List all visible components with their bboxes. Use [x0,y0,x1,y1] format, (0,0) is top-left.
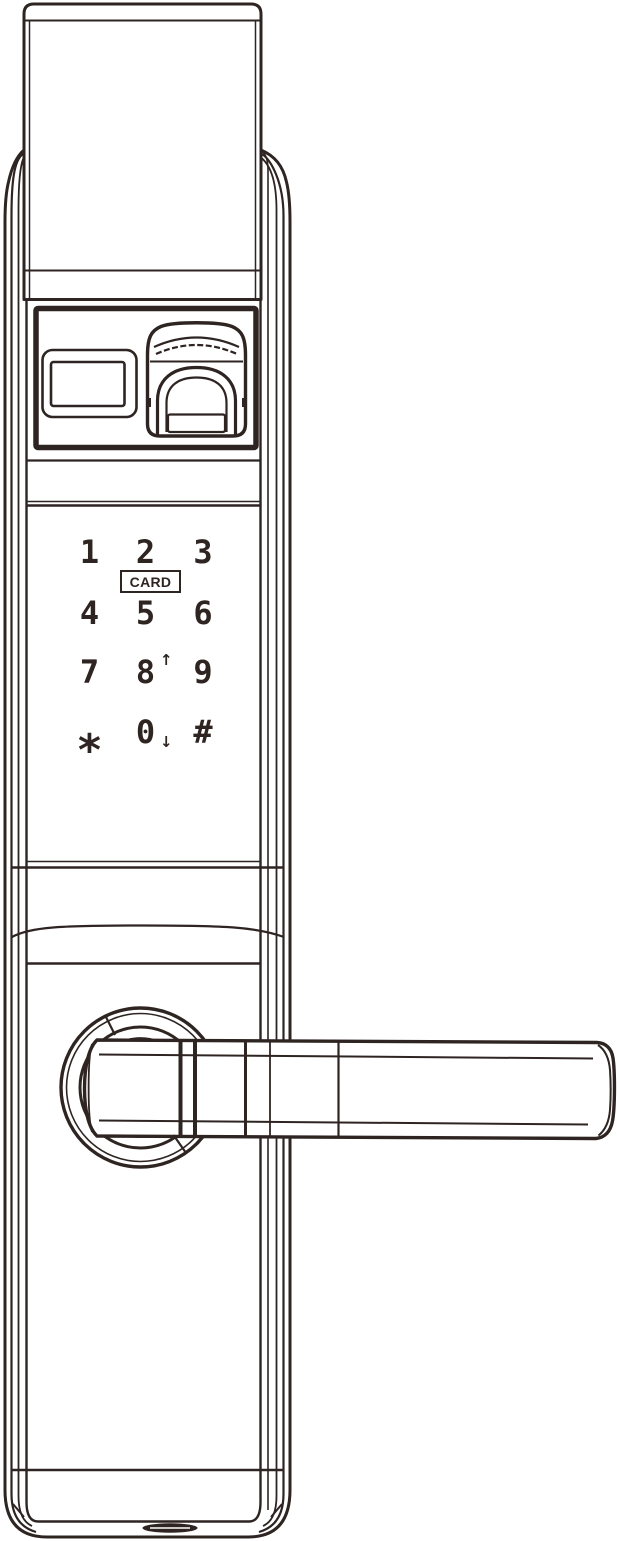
key-6[interactable]: 6 [179,591,227,635]
key-7[interactable]: 7 [66,650,114,694]
arrow-up-icon: ↑ [160,653,173,668]
key-3[interactable]: 3 [179,530,227,574]
key-8-label: 8 [136,653,155,691]
key-star[interactable]: * [66,710,114,772]
key-9[interactable]: 9 [179,650,227,694]
key-0-label: 0 [136,713,155,751]
keypad: 1 2 3 CARD 4 5 6 7 8 ↑ 9 * 0 ↓ # [0,0,617,1541]
key-4[interactable]: 4 [66,591,114,635]
card-badge: CARD [120,570,181,593]
key-0[interactable]: 0 ↓ [122,710,170,754]
key-5[interactable]: 5 [122,591,170,635]
key-1[interactable]: 1 [66,530,114,574]
arrow-down-icon: ↓ [160,735,173,750]
lock-drawing: 1 2 3 CARD 4 5 6 7 8 ↑ 9 * 0 ↓ # [0,0,617,1541]
key-8[interactable]: 8 ↑ [122,650,170,694]
key-hash[interactable]: # [179,710,227,754]
key-2[interactable]: 2 [122,530,170,574]
